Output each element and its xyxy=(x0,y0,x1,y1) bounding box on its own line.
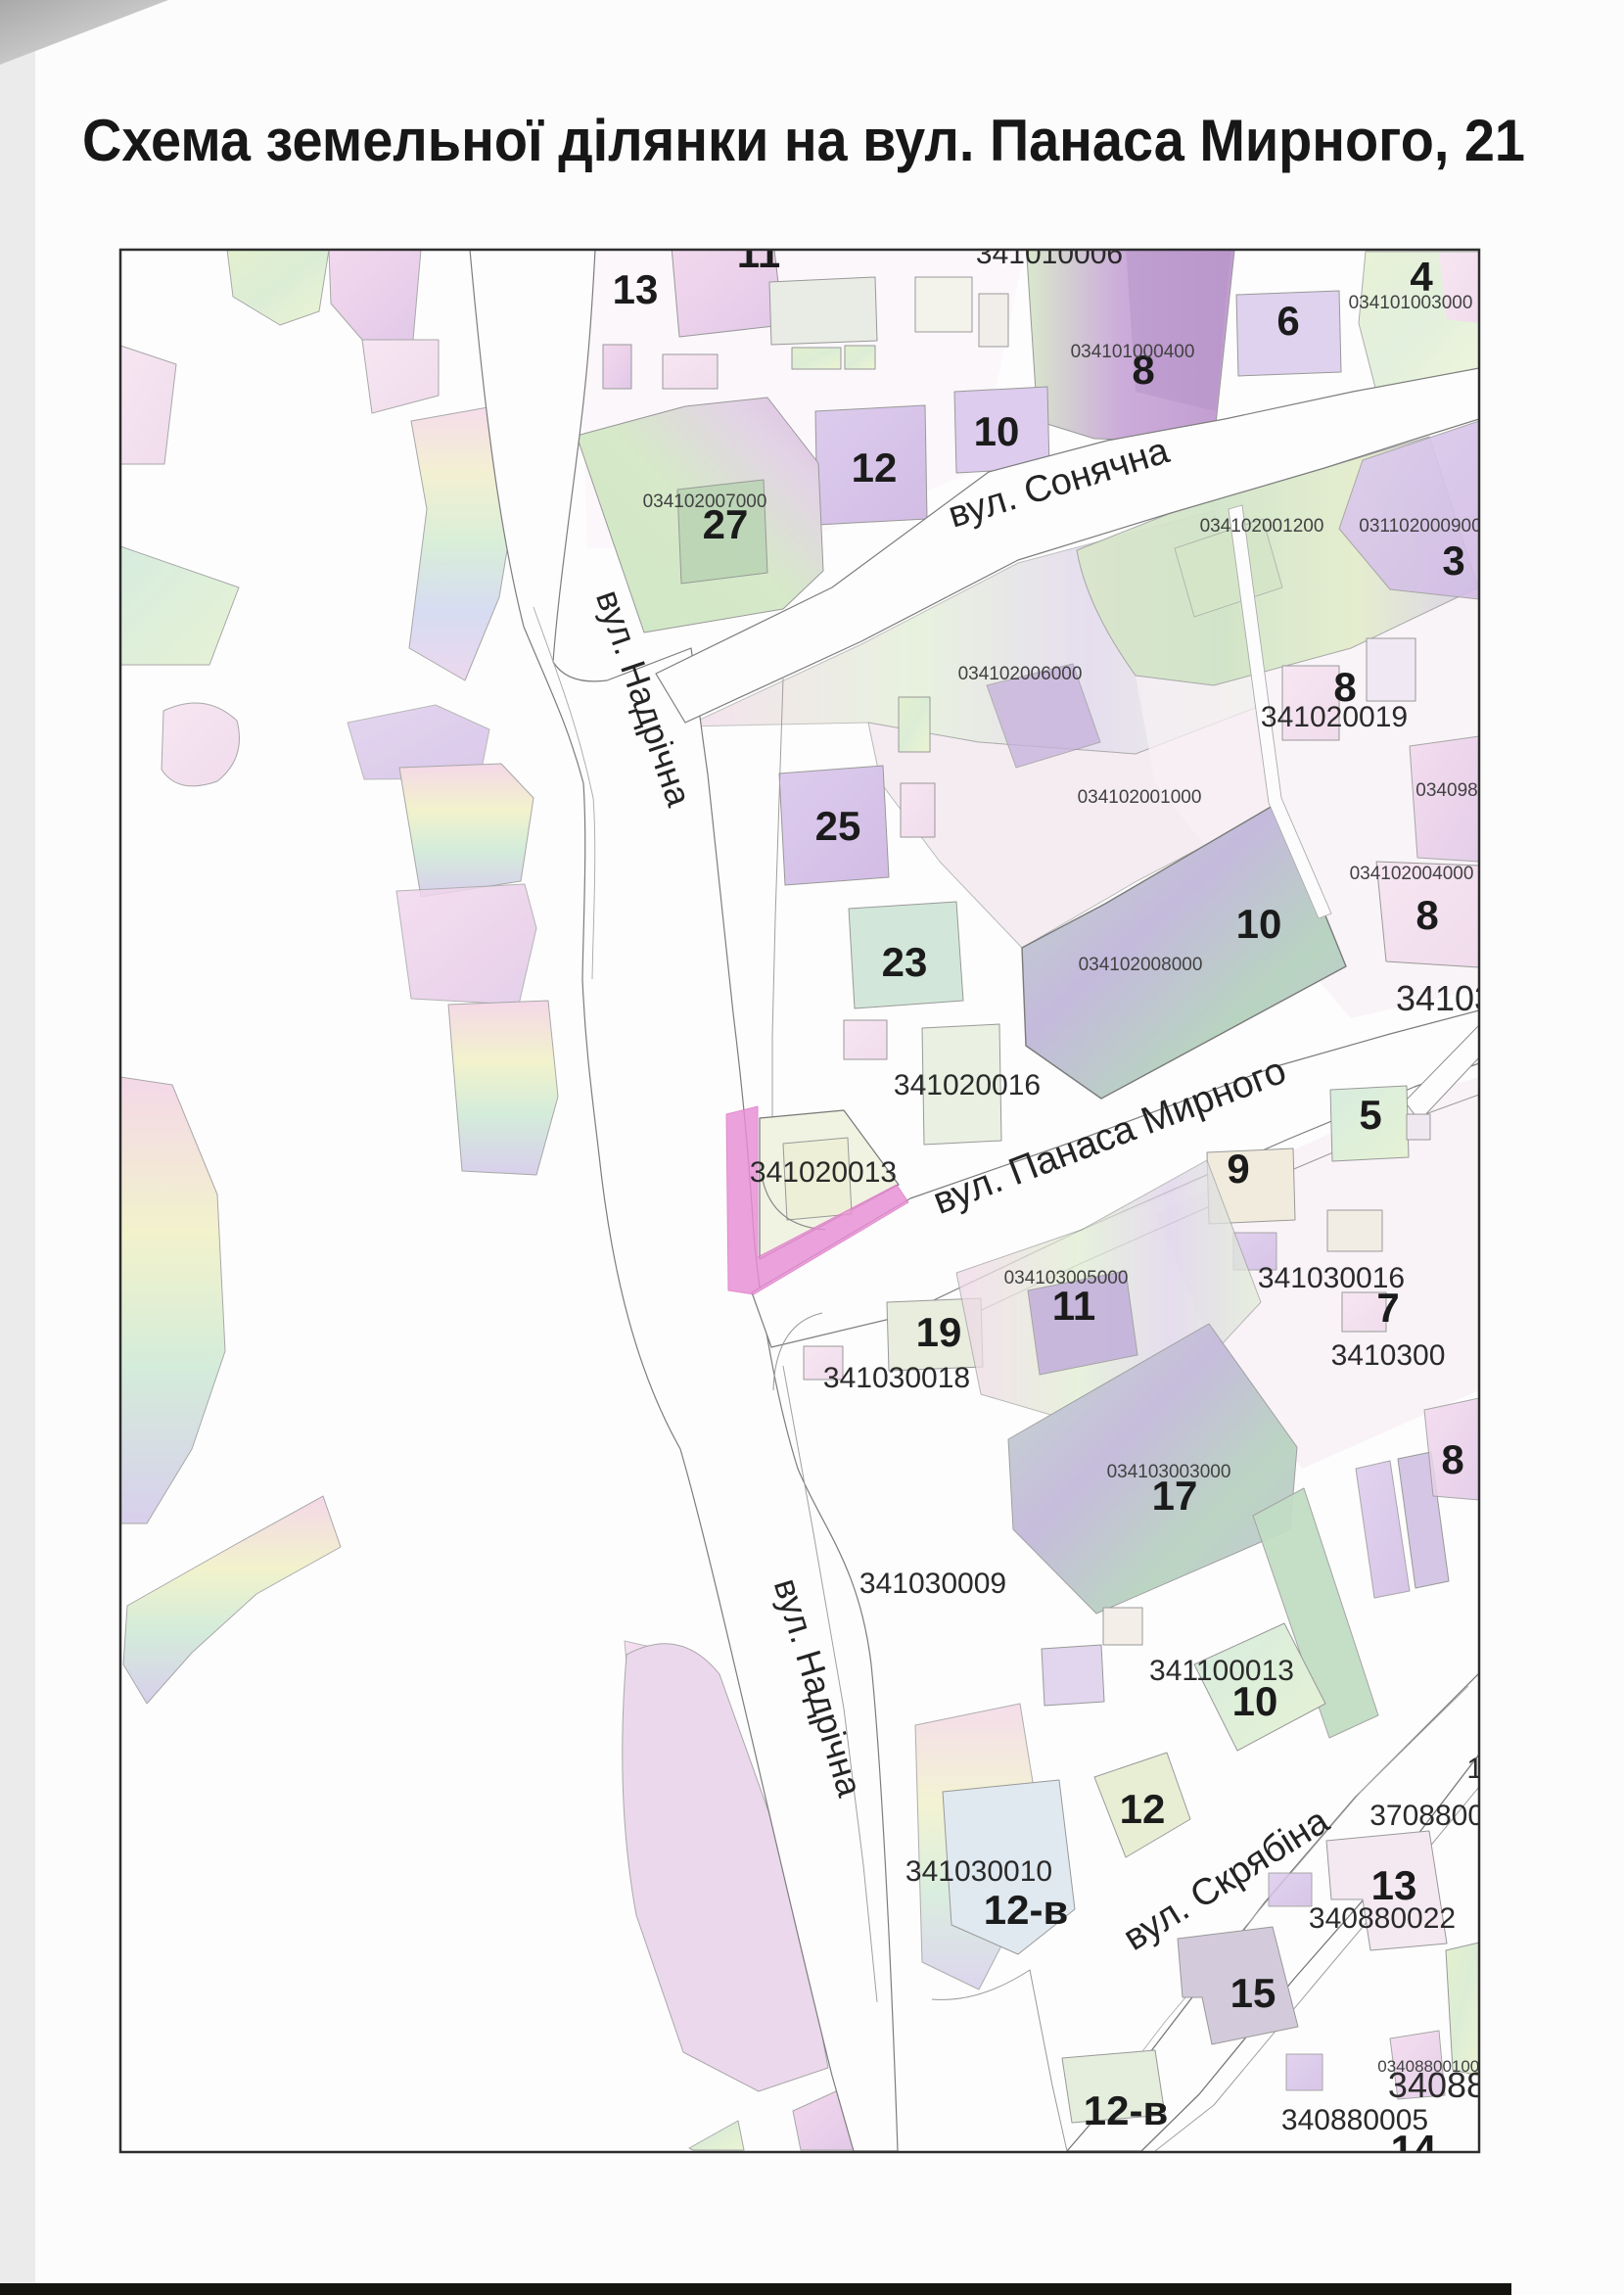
svg-text:034103003000: 034103003000 xyxy=(1107,1462,1231,1482)
svg-text:341030018: 341030018 xyxy=(823,1362,970,1394)
svg-text:9: 9 xyxy=(1227,1146,1249,1192)
svg-text:341020013: 341020013 xyxy=(750,1156,897,1189)
svg-text:15: 15 xyxy=(1230,1970,1276,2016)
svg-text:341020016: 341020016 xyxy=(894,1069,1041,1101)
svg-text:034088001000: 034088001000 xyxy=(1377,2057,1488,2076)
svg-text:Схема земельної ділянки на вул: Схема земельної ділянки на вул. Панаса М… xyxy=(82,108,1525,173)
svg-text:5: 5 xyxy=(1359,1092,1381,1138)
svg-text:11: 11 xyxy=(1052,1283,1095,1329)
svg-text:034101003000: 034101003000 xyxy=(1349,293,1473,313)
svg-text:340880005: 340880005 xyxy=(1281,2104,1428,2136)
svg-text:3: 3 xyxy=(1442,538,1464,584)
svg-text:034102004000: 034102004000 xyxy=(1350,864,1474,884)
svg-text:341030016: 341030016 xyxy=(1258,1262,1405,1294)
svg-text:034101000400: 034101000400 xyxy=(1071,342,1195,362)
svg-text:341020019: 341020019 xyxy=(1261,701,1408,733)
svg-text:034102006000: 034102006000 xyxy=(958,664,1083,684)
svg-text:034102001200: 034102001200 xyxy=(1200,516,1324,537)
svg-text:034102007000: 034102007000 xyxy=(643,492,767,512)
svg-text:12-в: 12-в xyxy=(1084,2087,1169,2133)
svg-text:031102000900: 031102000900 xyxy=(1359,516,1481,537)
svg-text:13: 13 xyxy=(1371,1862,1417,1908)
svg-text:341030009: 341030009 xyxy=(859,1568,1006,1600)
svg-text:19: 19 xyxy=(916,1309,962,1355)
svg-text:341030010: 341030010 xyxy=(905,1855,1052,1888)
svg-text:12-в: 12-в xyxy=(984,1887,1069,1933)
svg-text:10: 10 xyxy=(1236,901,1282,947)
svg-text:034103005000: 034103005000 xyxy=(1004,1268,1129,1288)
svg-text:12: 12 xyxy=(852,445,898,491)
svg-text:13: 13 xyxy=(613,266,659,312)
svg-text:8: 8 xyxy=(1441,1436,1463,1482)
svg-text:6: 6 xyxy=(1276,298,1299,344)
svg-text:340880022: 340880022 xyxy=(1309,1902,1456,1935)
svg-text:8: 8 xyxy=(1415,892,1438,938)
svg-text:341100013: 341100013 xyxy=(1149,1655,1294,1687)
svg-text:034102001000: 034102001000 xyxy=(1078,787,1202,808)
svg-text:3410300: 3410300 xyxy=(1331,1339,1446,1372)
svg-text:034102008000: 034102008000 xyxy=(1079,955,1203,975)
svg-text:034098: 034098 xyxy=(1415,780,1477,801)
svg-text:10: 10 xyxy=(974,408,1020,454)
svg-text:23: 23 xyxy=(882,939,928,985)
svg-text:25: 25 xyxy=(815,803,861,849)
svg-text:12: 12 xyxy=(1120,1786,1166,1832)
